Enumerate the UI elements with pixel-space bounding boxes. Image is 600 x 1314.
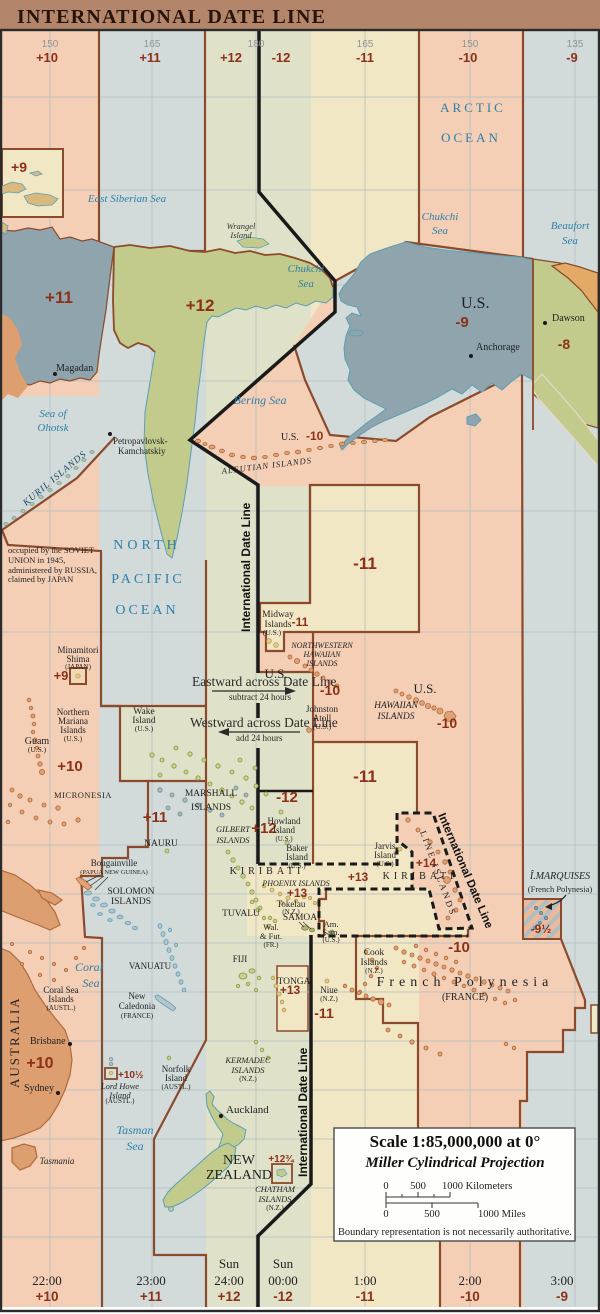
svg-text:HAWAIIAN: HAWAIIAN	[303, 650, 342, 659]
svg-text:Tasman: Tasman	[117, 1123, 154, 1137]
svg-text:Dawson: Dawson	[552, 313, 585, 324]
svg-text:OCEAN: OCEAN	[115, 603, 178, 618]
svg-text:500: 500	[410, 1181, 426, 1192]
svg-text:-11: -11	[356, 1289, 375, 1304]
svg-text:Coral: Coral	[75, 960, 104, 974]
svg-text:U.S.: U.S.	[413, 681, 436, 696]
svg-text:(AUSTL.): (AUSTL.)	[162, 1083, 192, 1091]
svg-text:TONGA: TONGA	[277, 977, 310, 987]
svg-text:(N.Z.): (N.Z.)	[239, 1075, 257, 1083]
svg-text:-9½: -9½	[531, 922, 552, 936]
svg-text:U.S.: U.S.	[264, 666, 287, 681]
svg-text:Island: Island	[229, 230, 252, 240]
svg-text:500: 500	[424, 1209, 440, 1220]
svg-text:Scale 1:85,000,000 at 0°: Scale 1:85,000,000 at 0°	[370, 1132, 541, 1151]
svg-text:+12: +12	[220, 50, 242, 65]
svg-text:-9: -9	[556, 1289, 568, 1304]
svg-text:1000 Miles: 1000 Miles	[478, 1209, 526, 1220]
svg-text:+11: +11	[45, 288, 73, 307]
svg-text:3:00: 3:00	[550, 1273, 573, 1288]
svg-text:Bougainville: Bougainville	[91, 858, 138, 868]
svg-text:KERMADEC: KERMADEC	[224, 1055, 271, 1065]
svg-text:Chukchi: Chukchi	[288, 263, 325, 275]
svg-text:NEW: NEW	[223, 1153, 256, 1168]
svg-text:(PAPUA NEW GUINEA): (PAPUA NEW GUINEA)	[80, 869, 148, 876]
svg-text:Sea: Sea	[126, 1139, 143, 1153]
svg-text:+11: +11	[143, 809, 168, 826]
svg-text:Tasmania: Tasmania	[40, 1156, 75, 1166]
svg-text:MICRONESIA: MICRONESIA	[54, 790, 112, 800]
svg-text:-10: -10	[459, 50, 478, 65]
svg-text:-10: -10	[306, 429, 324, 443]
svg-text:(FR.): (FR.)	[264, 941, 280, 949]
svg-text:CHATHAM: CHATHAM	[255, 1184, 296, 1194]
svg-text:165: 165	[144, 39, 161, 50]
svg-text:Niue: Niue	[320, 985, 338, 995]
svg-text:INTERNATIONAL DATE LINE: INTERNATIONAL DATE LINE	[17, 6, 326, 28]
svg-text:(U.S.): (U.S.)	[322, 936, 340, 944]
svg-text:Bering Sea: Bering Sea	[234, 393, 287, 407]
svg-text:Miller Cylindrical Projection: Miller Cylindrical Projection	[364, 1155, 544, 1171]
svg-text:ISLANDS: ISLANDS	[377, 712, 415, 722]
svg-text:Sydney: Sydney	[24, 1083, 54, 1094]
svg-text:Caledonia: Caledonia	[119, 1001, 156, 1011]
svg-text:24:00: 24:00	[214, 1273, 244, 1288]
svg-text:0: 0	[383, 1209, 388, 1220]
svg-text:Chukchi: Chukchi	[422, 211, 459, 223]
svg-text:Î.MARQUISES: Î.MARQUISES	[529, 870, 590, 882]
svg-text:Beaufort: Beaufort	[551, 220, 590, 232]
svg-text:ISLANDS: ISLANDS	[305, 659, 337, 668]
svg-text:+11: +11	[140, 1289, 163, 1304]
svg-text:Petropavlovsk-: Petropavlovsk-	[113, 436, 168, 446]
svg-text:(French Polynesia): (French Polynesia)	[528, 884, 593, 894]
svg-text:Sun: Sun	[273, 1256, 294, 1271]
svg-text:+9: +9	[11, 159, 27, 175]
svg-text:(U.S.): (U.S.)	[64, 734, 83, 743]
svg-text:-12: -12	[276, 789, 298, 806]
svg-text:(N.Z.): (N.Z.)	[266, 1204, 284, 1212]
svg-text:ISLANDS: ISLANDS	[230, 1065, 265, 1075]
svg-text:-9: -9	[455, 314, 468, 331]
svg-text:GILBERT: GILBERT	[216, 824, 251, 834]
svg-text:Sea: Sea	[298, 278, 314, 290]
svg-text:U.S.: U.S.	[281, 432, 299, 443]
svg-text:Cook: Cook	[364, 948, 385, 958]
svg-text:22:00: 22:00	[32, 1273, 62, 1288]
svg-text:(U.S.): (U.S.)	[135, 724, 154, 733]
svg-text:(AUSTL.): (AUSTL.)	[106, 1097, 136, 1105]
svg-text:+10: +10	[36, 50, 58, 65]
svg-text:-10: -10	[320, 682, 340, 698]
svg-text:+12: +12	[186, 296, 215, 315]
svg-text:(N.Z.): (N.Z.)	[320, 995, 338, 1003]
svg-text:FIJI: FIJI	[233, 954, 248, 964]
svg-text:+12¾: +12¾	[268, 1154, 294, 1165]
svg-text:2:00: 2:00	[458, 1273, 481, 1288]
svg-text:+13: +13	[287, 886, 308, 900]
svg-text:Sea: Sea	[432, 225, 448, 237]
svg-text:MARSHALL: MARSHALL	[185, 789, 237, 799]
svg-text:-12: -12	[272, 50, 291, 65]
svg-text:+10: +10	[26, 1055, 53, 1072]
svg-text:TUVALU: TUVALU	[222, 909, 260, 919]
svg-text:+11: +11	[139, 50, 160, 65]
svg-text:AUSTRALIA: AUSTRALIA	[7, 996, 22, 1088]
svg-text:& Fut.: & Fut.	[260, 931, 282, 941]
svg-text:French Polynesia: French Polynesia	[377, 975, 554, 990]
svg-text:-11: -11	[314, 1005, 334, 1021]
svg-text:U.S.: U.S.	[461, 295, 489, 312]
svg-text:180: 180	[248, 39, 265, 50]
svg-text:Sea of: Sea of	[39, 408, 68, 420]
svg-text:1:00: 1:00	[353, 1273, 376, 1288]
svg-text:Island: Island	[374, 850, 396, 860]
svg-text:OCEAN: OCEAN	[441, 130, 501, 145]
svg-text:HAWAIIAN: HAWAIIAN	[373, 701, 418, 711]
svg-text:165: 165	[357, 39, 374, 50]
svg-text:add 24 hours: add 24 hours	[236, 733, 283, 743]
svg-text:150: 150	[42, 39, 59, 50]
svg-text:Sea: Sea	[82, 976, 99, 990]
svg-text:-8: -8	[558, 336, 571, 352]
svg-text:(N.Z.): (N.Z.)	[365, 967, 383, 975]
svg-text:(U.S.): (U.S.)	[275, 835, 293, 843]
svg-text:Kamchatskiy: Kamchatskiy	[118, 446, 166, 456]
svg-text:NAURU: NAURU	[144, 839, 178, 849]
svg-text:+12: +12	[218, 1289, 241, 1304]
svg-text:occupied by the SOVIET: occupied by the SOVIET	[8, 545, 95, 555]
svg-text:Anchorage: Anchorage	[476, 342, 520, 353]
svg-text:0: 0	[383, 1181, 388, 1192]
svg-text:claimed by JAPAN: claimed by JAPAN	[8, 574, 73, 584]
svg-text:Island: Island	[286, 852, 308, 862]
svg-text:-11: -11	[353, 767, 377, 786]
svg-text:PACIFIC: PACIFIC	[111, 572, 184, 587]
svg-text:ZEALAND: ZEALAND	[206, 1168, 272, 1183]
svg-text:ISLANDS: ISLANDS	[257, 1194, 292, 1204]
svg-text:-10: -10	[437, 715, 457, 731]
svg-text:(U.S.): (U.S.)	[288, 862, 306, 870]
svg-text:(U.S.): (U.S.)	[376, 860, 394, 868]
svg-text:-10: -10	[460, 1289, 480, 1304]
svg-text:Ohotsk: Ohotsk	[37, 422, 69, 434]
svg-text:subtract 24 hours: subtract 24 hours	[229, 692, 291, 702]
svg-text:+10½: +10½	[118, 1070, 143, 1081]
svg-text:-11: -11	[292, 615, 309, 629]
svg-text:Boundary representation is not: Boundary representation is not necessari…	[338, 1226, 572, 1238]
svg-text:Brisbane: Brisbane	[30, 1036, 66, 1047]
svg-text:(FRANCE): (FRANCE)	[442, 992, 488, 1003]
svg-text:+10: +10	[36, 1289, 59, 1304]
svg-text:NORTHWESTERN: NORTHWESTERN	[290, 641, 353, 650]
svg-text:New: New	[129, 991, 146, 1001]
svg-text:(JAPAN): (JAPAN)	[65, 663, 91, 671]
svg-text:1000 Kilometers: 1000 Kilometers	[442, 1181, 512, 1192]
svg-text:International Date Line: International Date Line	[296, 1047, 310, 1177]
svg-text:ISLANDS: ISLANDS	[191, 803, 231, 813]
svg-text:+13: +13	[348, 870, 369, 884]
svg-text:23:00: 23:00	[136, 1273, 166, 1288]
svg-text:SAMOA: SAMOA	[283, 913, 317, 923]
svg-text:(U.S.): (U.S.)	[28, 745, 47, 754]
svg-text:East Siberian Sea: East Siberian Sea	[87, 193, 167, 205]
svg-text:ARCTIC: ARCTIC	[440, 100, 506, 115]
svg-text:Island: Island	[273, 825, 295, 835]
svg-text:Sea: Sea	[562, 235, 578, 247]
svg-text:(AUSTL.): (AUSTL.)	[47, 1004, 77, 1012]
svg-text:-12: -12	[273, 1289, 293, 1304]
svg-text:ISLANDS: ISLANDS	[111, 897, 151, 907]
svg-text:NORTH: NORTH	[113, 538, 180, 553]
svg-text:(U.S.): (U.S.)	[313, 722, 332, 731]
svg-text:-11: -11	[356, 50, 374, 65]
svg-text:00:00: 00:00	[268, 1273, 298, 1288]
svg-text:Midway: Midway	[262, 610, 294, 620]
svg-text:(U.S.): (U.S.)	[263, 628, 282, 637]
svg-text:-10: -10	[448, 939, 470, 956]
svg-text:-9: -9	[566, 50, 578, 65]
svg-text:Islands: Islands	[48, 994, 74, 1004]
svg-text:+10: +10	[57, 758, 82, 775]
svg-text:-11: -11	[353, 554, 377, 573]
svg-text:Sun: Sun	[219, 1256, 240, 1271]
svg-text:SOLOMON: SOLOMON	[108, 887, 155, 897]
svg-text:150: 150	[462, 39, 479, 50]
svg-text:Auckland: Auckland	[226, 1104, 269, 1116]
svg-text:PHOENIX ISLANDS: PHOENIX ISLANDS	[261, 879, 329, 888]
svg-text:135: 135	[567, 39, 584, 50]
svg-text:VANUATU: VANUATU	[129, 961, 172, 971]
svg-text:International Date Line: International Date Line	[239, 502, 253, 632]
svg-text:Magadan: Magadan	[56, 363, 93, 374]
svg-text:UNION in 1945,: UNION in 1945,	[8, 555, 65, 565]
svg-text:ISLANDS: ISLANDS	[215, 835, 250, 845]
svg-text:Island: Island	[165, 1073, 187, 1083]
svg-text:(FRANCE): (FRANCE)	[121, 1012, 154, 1020]
